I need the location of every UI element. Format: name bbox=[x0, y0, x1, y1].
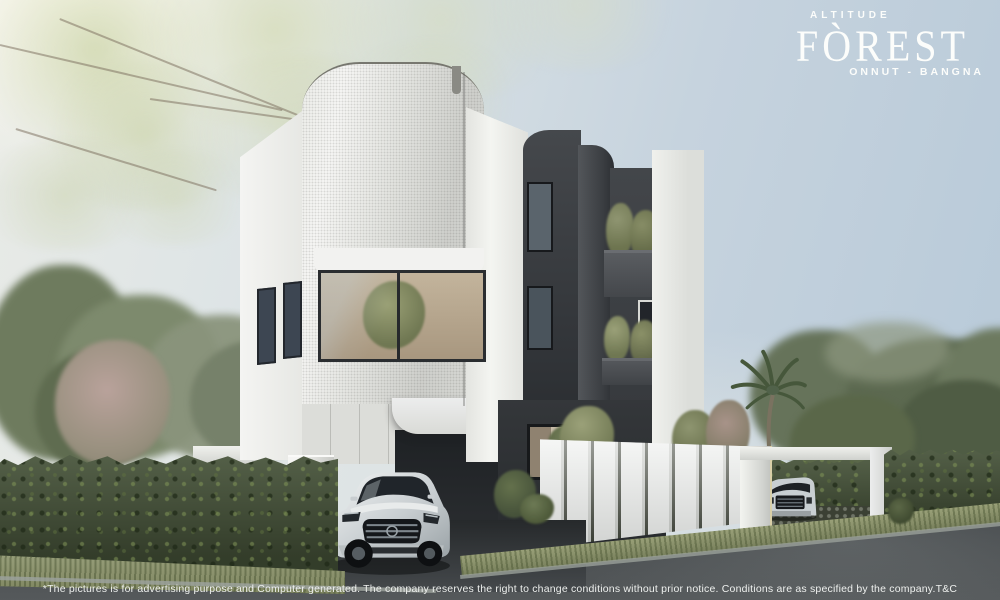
window bbox=[283, 281, 302, 359]
parapet-notch bbox=[452, 66, 461, 94]
project-name: FÒREST bbox=[796, 23, 986, 69]
altitude-forest-advert: ALTITUDE FÒREST ONNUT - BANGNA *The pict… bbox=[0, 0, 1000, 600]
brand-name: ALTITUDE bbox=[810, 10, 986, 21]
window bbox=[527, 286, 553, 350]
sedan-car bbox=[322, 460, 458, 578]
legal-disclaimer: *The pictures is for advertising purpose… bbox=[0, 583, 1000, 595]
hedge-left bbox=[0, 450, 338, 576]
window bbox=[257, 287, 276, 365]
towerA-left-face bbox=[240, 108, 306, 460]
window bbox=[527, 182, 553, 252]
bay-window bbox=[318, 270, 486, 362]
brand-logo: ALTITUDE FÒREST ONNUT - BANGNA bbox=[796, 10, 986, 78]
glass-reflection bbox=[321, 273, 483, 359]
